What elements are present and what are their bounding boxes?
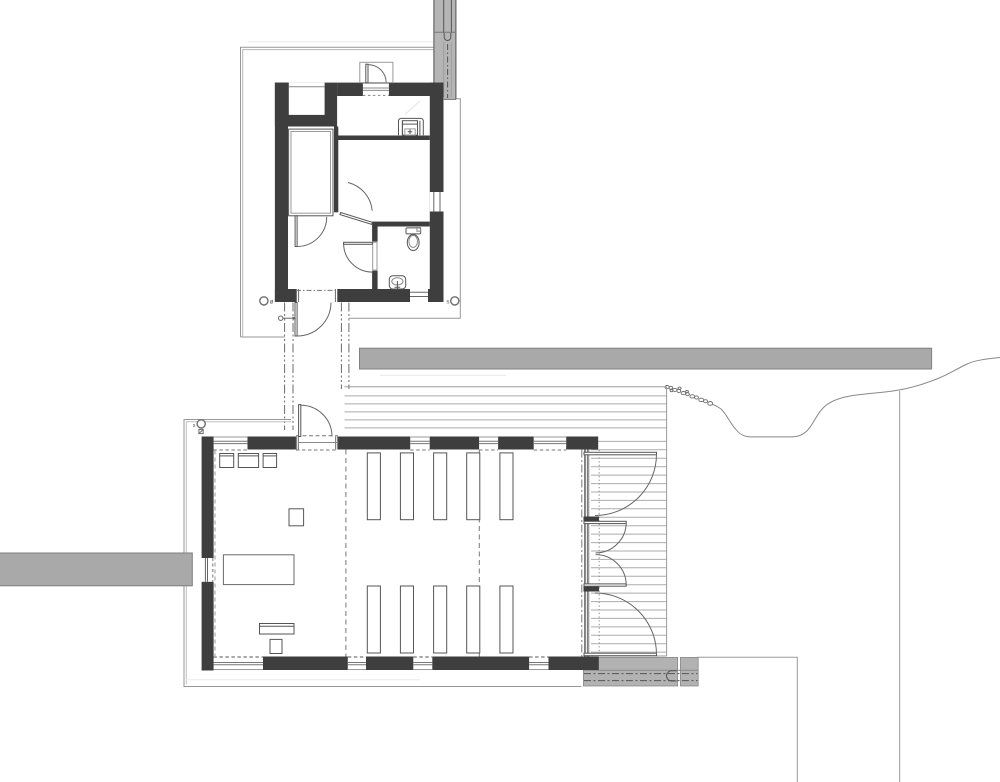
svg-text:s: s xyxy=(193,423,196,429)
svg-text:ø: ø xyxy=(270,299,274,305)
svg-text:s: s xyxy=(447,299,450,305)
